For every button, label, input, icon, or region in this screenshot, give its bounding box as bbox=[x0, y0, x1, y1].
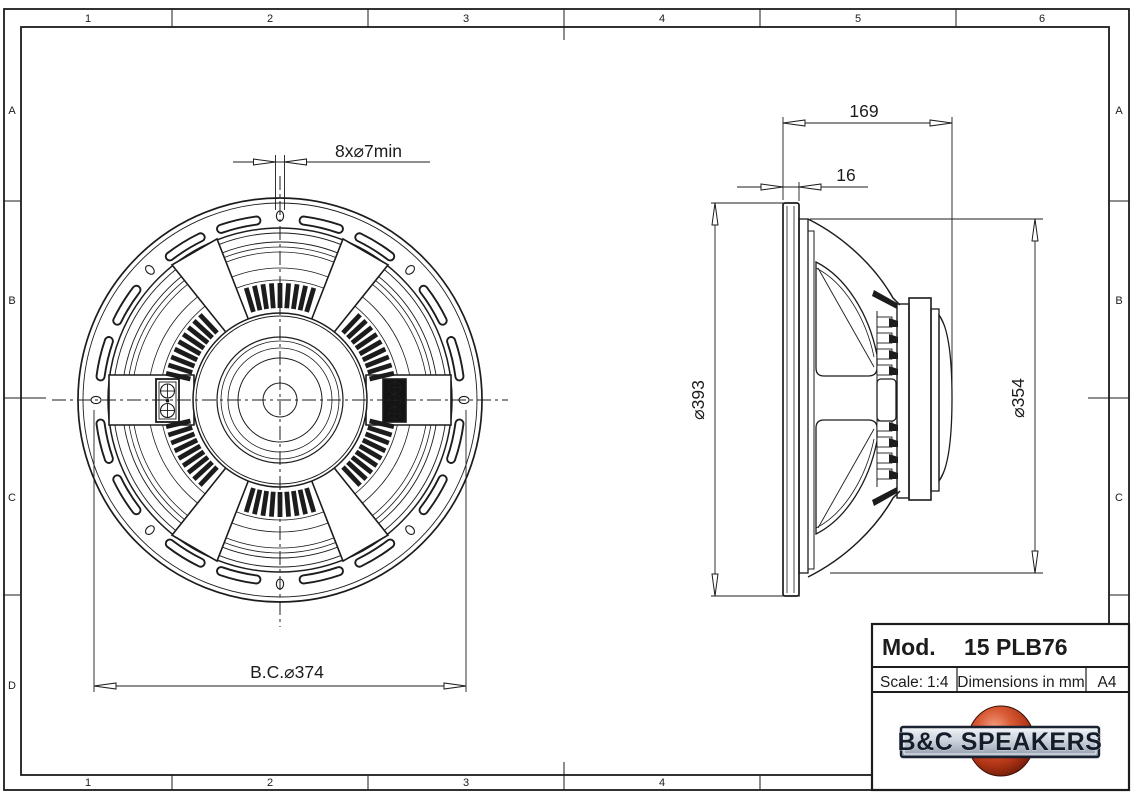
dim-arrow bbox=[799, 184, 821, 190]
model-label: Mod. bbox=[882, 634, 936, 660]
dim-arrow bbox=[94, 683, 116, 689]
scale-label: Scale: bbox=[880, 674, 923, 691]
vent-gill bbox=[307, 288, 314, 312]
row-label-right: B bbox=[1115, 295, 1122, 307]
spider-center-brace bbox=[877, 379, 896, 421]
vent-gill bbox=[263, 491, 267, 516]
side-view: 169 16 ⌀393 ⌀354 bbox=[688, 101, 1043, 596]
col-label-bottom: 4 bbox=[659, 777, 665, 789]
vent-gill bbox=[293, 491, 297, 516]
basket-outer-curve bbox=[808, 219, 900, 305]
col-label-top: 1 bbox=[85, 13, 91, 25]
side-dimensions: 169 16 ⌀393 ⌀354 bbox=[688, 101, 1043, 596]
dim-arrow bbox=[930, 120, 952, 126]
vent-gill bbox=[293, 284, 297, 309]
dim-arrow bbox=[1032, 219, 1038, 241]
basket-rim-wedge bbox=[872, 487, 897, 506]
pole-piece bbox=[939, 315, 952, 481]
dim-depth-label: 169 bbox=[849, 101, 878, 121]
pole-chamfer bbox=[939, 469, 945, 481]
dim-baffle-diameter-label: ⌀354 bbox=[1008, 378, 1028, 418]
dim-arrow bbox=[761, 184, 783, 190]
row-label-left: B bbox=[8, 295, 15, 307]
pole-chamfer bbox=[939, 315, 945, 327]
cone-edge bbox=[816, 439, 874, 528]
terminal-dot bbox=[166, 399, 170, 403]
paper-size: A4 bbox=[1098, 674, 1117, 691]
dim-outer-diameter-label: ⌀393 bbox=[688, 380, 708, 420]
vent-gill bbox=[287, 283, 289, 308]
drawing-sheet: 1 2 3 4 5 6 1 2 3 4 A B C D A B C bbox=[0, 0, 1137, 797]
dim-bolt-circle-label: B.C.⌀374 bbox=[250, 662, 324, 682]
dim-arrow bbox=[444, 683, 466, 689]
basket-front-ring bbox=[808, 231, 814, 569]
col-label-top: 2 bbox=[267, 13, 273, 25]
gasket-step bbox=[799, 219, 808, 573]
spider-slats bbox=[877, 317, 898, 479]
mounting-hole bbox=[404, 264, 416, 276]
vent-gill bbox=[300, 490, 305, 514]
drawing-svg: 1 2 3 4 5 6 1 2 3 4 A B C D A B C bbox=[0, 0, 1137, 797]
dimensions-note: Dimensions in mm bbox=[957, 674, 1084, 691]
dim-holes-label: 8x⌀7min bbox=[335, 141, 402, 161]
magnet-back-plate bbox=[931, 309, 939, 491]
row-label-left: A bbox=[8, 105, 16, 117]
vent-gill bbox=[246, 288, 253, 312]
col-label-top: 5 bbox=[855, 13, 861, 25]
mounting-flange bbox=[783, 203, 799, 596]
dim-arrow bbox=[254, 159, 276, 165]
mounting-hole bbox=[404, 524, 416, 536]
model-value: 15 PLB76 bbox=[964, 634, 1068, 660]
vent-gill bbox=[271, 492, 273, 517]
vent-gill bbox=[300, 286, 305, 310]
col-label-bottom: 2 bbox=[267, 777, 273, 789]
basket-rim-wedge bbox=[872, 290, 897, 309]
col-label-top: 6 bbox=[1039, 13, 1045, 25]
col-label-bottom: 1 bbox=[85, 777, 91, 789]
row-label-right: A bbox=[1115, 105, 1123, 117]
col-label-top: 3 bbox=[463, 13, 469, 25]
basket-outer-curve bbox=[808, 491, 900, 577]
vent-gill bbox=[271, 283, 273, 308]
dim-arrow bbox=[285, 159, 307, 165]
dim-arrow bbox=[712, 203, 718, 225]
front-view: 8x⌀7min B.C.⌀374 bbox=[52, 141, 508, 692]
vent-gill bbox=[254, 286, 259, 310]
title-block: Mod. 15 PLB76 Scale: 1:4 Dimensions in m… bbox=[872, 624, 1129, 790]
magnet-body bbox=[909, 298, 931, 500]
dim-arrow bbox=[783, 120, 805, 126]
vent-gill bbox=[263, 284, 267, 309]
mounting-hole bbox=[144, 264, 156, 276]
dim-flange-label: 16 bbox=[836, 165, 855, 185]
logo-text: B&C SPEAKERS bbox=[898, 728, 1103, 756]
vent-gill bbox=[287, 492, 289, 517]
mounting-hole bbox=[144, 524, 156, 536]
vent-gill bbox=[307, 488, 314, 512]
magnet-front-plate bbox=[897, 304, 909, 498]
vent-gill bbox=[254, 490, 259, 514]
row-label-left: D bbox=[8, 680, 16, 692]
dim-arrow bbox=[1032, 551, 1038, 573]
col-label-bottom: 3 bbox=[463, 777, 469, 789]
scale-value: 1:4 bbox=[927, 674, 949, 691]
row-label-left: C bbox=[8, 492, 16, 504]
row-label-right: C bbox=[1115, 492, 1123, 504]
col-label-top: 4 bbox=[659, 13, 665, 25]
cone-edge bbox=[816, 268, 874, 357]
dim-arrow bbox=[712, 574, 718, 596]
vent-gill bbox=[246, 488, 253, 512]
